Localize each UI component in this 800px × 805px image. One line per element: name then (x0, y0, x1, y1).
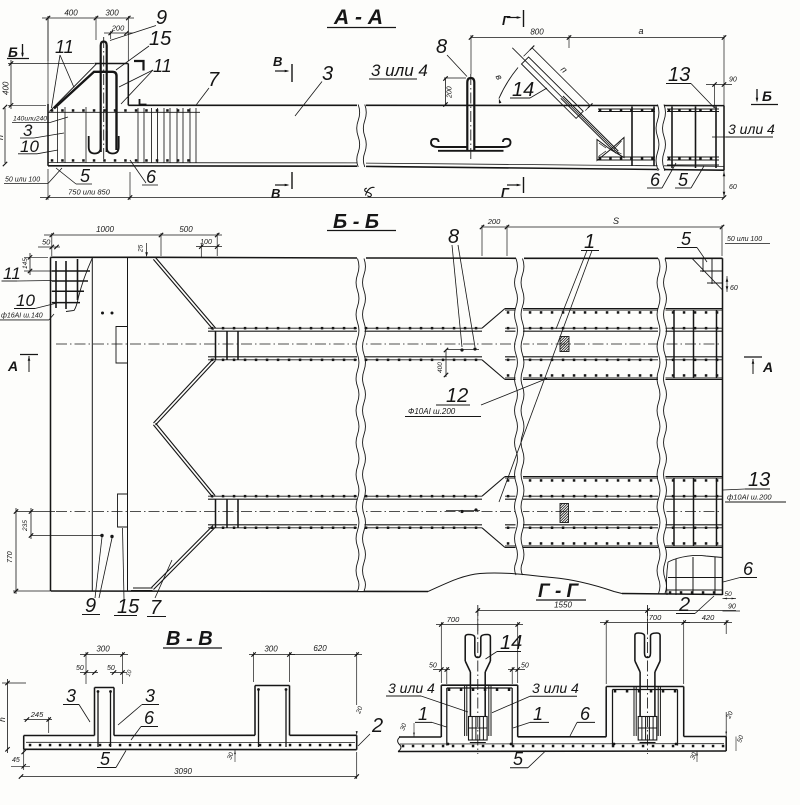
svg-text:1: 1 (418, 704, 428, 724)
svg-text:5: 5 (678, 170, 689, 190)
svg-text:420: 420 (702, 613, 715, 622)
svg-text:3: 3 (145, 686, 155, 706)
svg-text:50: 50 (107, 665, 115, 672)
svg-text:8: 8 (448, 226, 459, 248)
svg-text:145: 145 (22, 258, 29, 269)
svg-text:Б - Б: Б - Б (333, 211, 379, 233)
svg-text:3 или 4: 3 или 4 (388, 680, 435, 696)
svg-text:А: А (7, 358, 18, 374)
svg-text:15: 15 (149, 28, 172, 50)
svg-text:45: 45 (12, 757, 20, 764)
svg-text:9: 9 (85, 595, 96, 617)
svg-text:в: в (494, 72, 505, 81)
svg-text:2: 2 (678, 594, 690, 616)
svg-text:50: 50 (429, 663, 437, 670)
svg-text:5: 5 (100, 749, 111, 769)
svg-text:200: 200 (487, 217, 501, 226)
svg-text:h: h (0, 717, 7, 722)
svg-text:50: 50 (42, 238, 51, 247)
svg-text:60: 60 (729, 184, 737, 191)
svg-text:20: 20 (355, 705, 365, 715)
svg-text:7: 7 (208, 69, 220, 91)
svg-text:235: 235 (22, 520, 29, 532)
svg-text:ф16АI ш.140: ф16АI ш.140 (1, 313, 43, 320)
svg-text:800: 800 (530, 28, 544, 37)
svg-text:А - А: А - А (333, 6, 383, 29)
svg-text:50: 50 (76, 665, 84, 672)
svg-text:400: 400 (2, 81, 11, 95)
svg-text:А: А (762, 359, 773, 375)
svg-text:750 или 850: 750 или 850 (68, 188, 111, 197)
svg-text:2: 2 (371, 715, 383, 737)
svg-text:6: 6 (146, 167, 157, 187)
svg-text:8: 8 (436, 36, 447, 58)
svg-text:3 или 4: 3 или 4 (371, 61, 428, 80)
svg-text:6: 6 (650, 170, 661, 190)
svg-text:50: 50 (725, 591, 733, 598)
svg-text:13: 13 (748, 469, 770, 491)
svg-text:В - В: В - В (166, 628, 213, 650)
svg-text:1000: 1000 (96, 225, 114, 234)
svg-text:10: 10 (16, 291, 35, 310)
svg-text:400: 400 (64, 9, 78, 18)
svg-text:400: 400 (437, 362, 444, 373)
svg-text:3: 3 (322, 63, 333, 85)
svg-text:30: 30 (399, 722, 408, 732)
svg-text:Б: Б (762, 88, 772, 104)
svg-text:10: 10 (20, 137, 39, 156)
svg-text:п: п (559, 64, 570, 75)
svg-text:700: 700 (447, 615, 460, 624)
svg-text:1550: 1550 (554, 601, 572, 610)
svg-text:1: 1 (584, 231, 595, 253)
svg-text:Г - Г: Г - Г (538, 581, 580, 602)
svg-text:50: 50 (521, 663, 529, 670)
svg-text:50 или 100: 50 или 100 (727, 236, 762, 243)
svg-text:200: 200 (111, 24, 125, 33)
svg-text:13: 13 (668, 64, 690, 86)
svg-text:3 или 4: 3 или 4 (532, 680, 579, 696)
svg-text:300: 300 (105, 9, 119, 18)
svg-text:В: В (273, 54, 282, 69)
svg-text:Г: Г (501, 185, 510, 200)
svg-text:12: 12 (446, 385, 468, 407)
svg-text:3: 3 (66, 686, 76, 706)
svg-text:а: а (638, 26, 643, 36)
svg-text:770: 770 (7, 551, 14, 563)
svg-text:90: 90 (729, 77, 737, 84)
svg-text:3090: 3090 (174, 767, 192, 776)
svg-text:30: 30 (226, 751, 235, 761)
svg-text:700: 700 (649, 613, 662, 622)
svg-text:6: 6 (580, 704, 591, 724)
svg-text:5: 5 (80, 166, 91, 186)
svg-text:620: 620 (313, 644, 327, 653)
svg-text:60: 60 (730, 285, 738, 292)
svg-text:11: 11 (3, 264, 21, 283)
svg-text:5: 5 (681, 229, 692, 249)
svg-text:200: 200 (447, 86, 454, 99)
svg-text:h: h (0, 135, 5, 140)
svg-text:10: 10 (126, 669, 134, 678)
svg-text:6: 6 (144, 708, 155, 728)
svg-text:245: 245 (30, 710, 44, 719)
svg-text:50: 50 (736, 734, 745, 744)
svg-text:300: 300 (96, 645, 110, 654)
svg-text:1: 1 (533, 704, 543, 724)
svg-text:Б: Б (8, 44, 18, 60)
svg-text:90: 90 (728, 604, 736, 611)
svg-text:50 или 100: 50 или 100 (5, 177, 40, 184)
svg-text:6: 6 (743, 559, 754, 579)
svg-text:25: 25 (138, 244, 145, 253)
svg-text:300: 300 (264, 645, 278, 654)
svg-text:5: 5 (513, 749, 524, 769)
svg-text:Г: Г (502, 13, 511, 28)
svg-text:11: 11 (55, 37, 74, 57)
svg-text:S: S (613, 216, 619, 226)
svg-text:11: 11 (153, 56, 172, 76)
svg-text:7: 7 (150, 597, 162, 619)
svg-text:3 или 4: 3 или 4 (728, 121, 775, 137)
svg-text:ф10АI ш.200: ф10АI ш.200 (727, 493, 772, 502)
svg-text:9: 9 (156, 7, 167, 29)
svg-text:В: В (271, 186, 280, 201)
svg-text:500: 500 (179, 225, 193, 234)
svg-text:15: 15 (117, 596, 140, 618)
svg-text:14: 14 (500, 632, 522, 654)
svg-text:Ф10АI ш.200: Ф10АI ш.200 (408, 407, 456, 416)
svg-text:100: 100 (200, 239, 212, 246)
